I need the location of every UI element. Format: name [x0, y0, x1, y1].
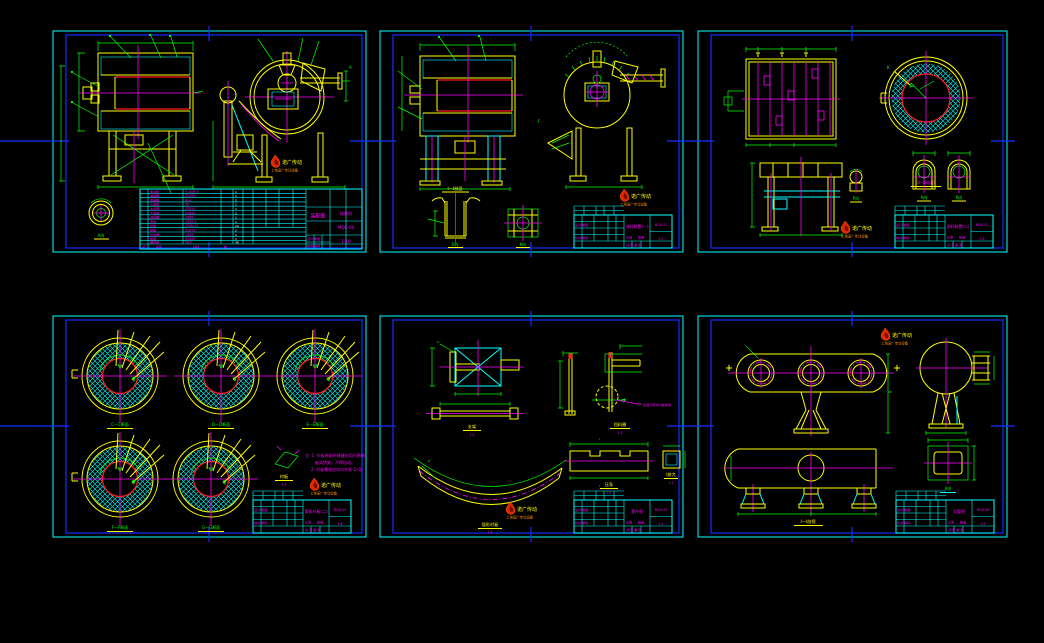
svg-text:K: K [887, 65, 890, 70]
svg-text:设计 制图: 设计 制图 [307, 236, 320, 241]
svg-text:设计 制图: 设计 制图 [575, 507, 588, 512]
svg-text:序: 序 [142, 244, 145, 249]
sheet-3-title: 进料装置(二) [946, 223, 970, 229]
svg-text:联轴器: 联轴器 [150, 197, 159, 202]
svg-text:数量: 数量 [638, 235, 644, 240]
svg-text:校对 审核: 校对 审核 [896, 235, 909, 240]
svg-text:Ⅰ: Ⅰ [599, 484, 600, 488]
svg-text:衬板: 衬板 [150, 223, 156, 228]
svg-text:比例: 比例 [626, 520, 632, 525]
svg-text:出料器: 出料器 [150, 232, 159, 237]
svg-text:1:2: 1:2 [618, 431, 623, 435]
svg-text:1:5: 1:5 [980, 237, 985, 241]
svg-text:大齿圈: 大齿圈 [150, 206, 159, 211]
svg-text:支架: 支架 [468, 423, 476, 430]
section-label: Ⅰ—Ⅰ剖面 [447, 185, 462, 192]
svg-text:MQG-06: MQG-06 [977, 508, 990, 512]
svg-text:48: 48 [235, 241, 239, 245]
svg-text:M20: M20 [185, 241, 192, 245]
svg-text:校对 审核: 校对 审核 [897, 520, 910, 525]
cad-canvas: 诺广传动 上海诺广传动设备 [0, 0, 1044, 643]
svg-text:1:5: 1:5 [282, 483, 287, 487]
svg-text:设计 制图: 设计 制图 [254, 507, 267, 512]
svg-text:材料: 材料 [193, 244, 199, 249]
svg-text:Ⅰ放大: Ⅰ放大 [666, 471, 676, 478]
svg-text:1:1: 1:1 [669, 481, 674, 485]
svg-text:G—G断面: G—G断面 [202, 524, 220, 530]
svg-text:E—E断面: E—E断面 [306, 421, 323, 427]
svg-text:1:2: 1:2 [470, 433, 475, 437]
svg-text:共 张 第 张: 共 张 第 张 [947, 242, 962, 247]
svg-text:比例: 比例 [947, 235, 953, 240]
svg-text:1:5: 1:5 [659, 237, 664, 241]
svg-text:P向: P向 [853, 195, 859, 201]
svg-text:1:5: 1:5 [981, 522, 986, 526]
svg-text:A向: A向 [921, 194, 928, 200]
svg-text:K向: K向 [956, 194, 963, 200]
weld-note: 弧面与筒体内壁焊接 [643, 402, 671, 407]
svg-text:比例: 比例 [948, 520, 954, 525]
svg-text:MQG-02: MQG-02 [976, 223, 989, 227]
svg-text:共 张 第 张: 共 张 第 张 [305, 527, 320, 532]
svg-text:D向: D向 [451, 241, 458, 247]
svg-text:校对 审核: 校对 审核 [575, 235, 588, 240]
svg-text:电动机: 电动机 [150, 189, 160, 194]
detail-a-label: A向 [98, 232, 105, 238]
svg-text:2. 衬板螺栓应均匀拧紧 Q-Q。: 2. 衬板螺栓应均匀拧紧 Q-Q。 [311, 466, 365, 472]
svg-text:进料器: 进料器 [150, 215, 159, 220]
svg-text:衬板: 衬板 [280, 473, 289, 480]
svg-text:设计 制图: 设计 制图 [896, 222, 909, 227]
svg-text:校对 审核: 校对 审核 [254, 520, 267, 525]
svg-text:共 张 第 张: 共 张 第 张 [948, 527, 963, 532]
svg-text:校对 审核: 校对 审核 [307, 243, 320, 248]
svg-text:减速器: 减速器 [150, 193, 159, 198]
svg-text:挡料圈: 挡料圈 [614, 421, 627, 428]
sheet-1-title: 装配图 [310, 213, 325, 220]
svg-text:比例: 比例 [305, 520, 311, 525]
svg-text:数量: 数量 [317, 520, 323, 525]
svg-text:A: A [349, 65, 352, 70]
svg-text:设计 制图: 设计 制图 [575, 222, 588, 227]
svg-text:C—C断面: C—C断面 [111, 421, 129, 427]
svg-text:共 张 第 张: 共 张 第 张 [626, 242, 641, 247]
svg-text:MQG-01: MQG-01 [655, 223, 668, 227]
svg-text:1:10: 1:10 [342, 239, 351, 244]
svg-text:注: 1. 衬板装配时接缝处用石棉绳: 注: 1. 衬板装配时接缝处用石棉绳 [305, 452, 365, 458]
svg-text:A向: A向 [945, 485, 952, 491]
svg-text:设计 制图: 设计 制图 [897, 507, 910, 512]
svg-text:MQG-04: MQG-04 [334, 508, 347, 512]
sheet-4-title: 筒体衬板(二) [304, 508, 328, 514]
sheet-6-title: 风管图 [953, 508, 965, 514]
svg-text:1:4: 1:4 [488, 531, 493, 535]
svg-text:数量: 数量 [960, 520, 966, 525]
svg-text:比例: 比例 [626, 235, 632, 240]
svg-text:数: 数 [224, 244, 227, 249]
svg-text:校对 审核: 校对 审核 [575, 520, 588, 525]
svg-text:嵌实挤紧，不得松动。: 嵌实挤紧，不得松动。 [315, 459, 355, 465]
sheet-1-dwgno: MQG-00 [338, 225, 355, 230]
svg-text:F—F断面: F—F断面 [112, 524, 129, 530]
svg-text:Ⅰ: Ⅰ [599, 437, 600, 441]
bottom-view-label: Ⅰ—Ⅰ剖视 [800, 518, 816, 525]
svg-text:R: R [428, 459, 430, 463]
svg-text:筒体: 筒体 [150, 219, 156, 224]
svg-text:主轴承: 主轴承 [150, 210, 159, 215]
svg-text:螺栓组: 螺栓组 [150, 240, 159, 245]
sheet-5-title: 零件图 [631, 508, 643, 514]
svg-text:共 张 第 张: 共 张 第 张 [626, 527, 641, 532]
svg-text:压条: 压条 [605, 481, 614, 488]
svg-text:小齿轮: 小齿轮 [150, 202, 159, 207]
svg-text:端盖: 端盖 [150, 228, 156, 233]
svg-text:名称: 名称 [156, 244, 162, 249]
sheet-2-title: 进料装置(一) [625, 223, 649, 229]
svg-text:MQG-05: MQG-05 [655, 508, 668, 512]
svg-text:1:8: 1:8 [338, 522, 343, 526]
svg-text:数量: 数量 [959, 235, 965, 240]
sheet-1-product: 球磨机 [340, 210, 352, 216]
svg-text:K向: K向 [520, 241, 527, 247]
svg-text:1:2: 1:2 [659, 522, 664, 526]
svg-text:D—D断面: D—D断面 [212, 421, 230, 427]
svg-text:弧形衬板: 弧形衬板 [482, 521, 500, 528]
svg-text:数量: 数量 [638, 520, 644, 525]
